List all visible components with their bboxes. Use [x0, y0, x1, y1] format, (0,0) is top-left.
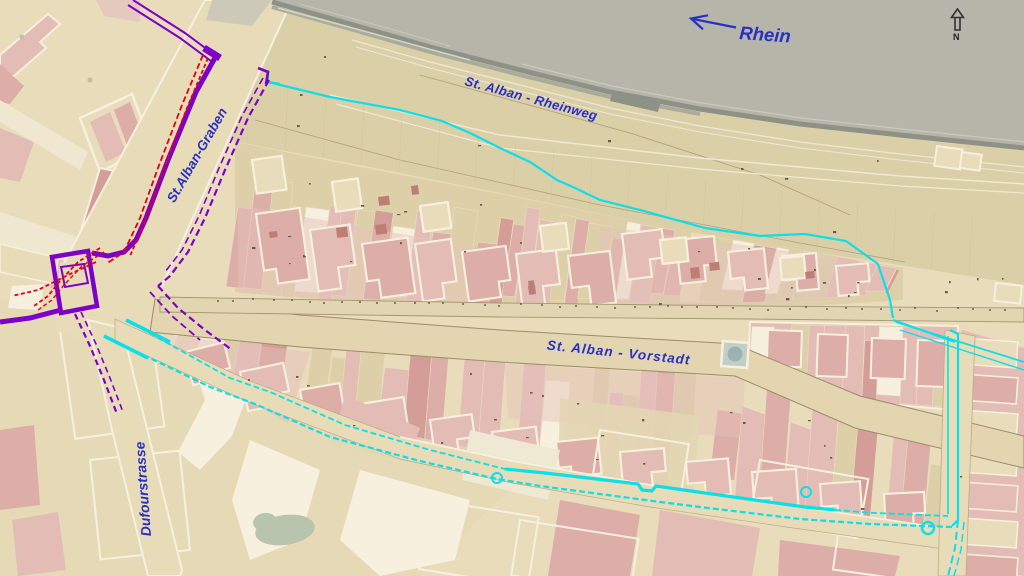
svg-text:N: N	[953, 32, 960, 42]
svg-text:Rhein: Rhein	[739, 22, 792, 47]
